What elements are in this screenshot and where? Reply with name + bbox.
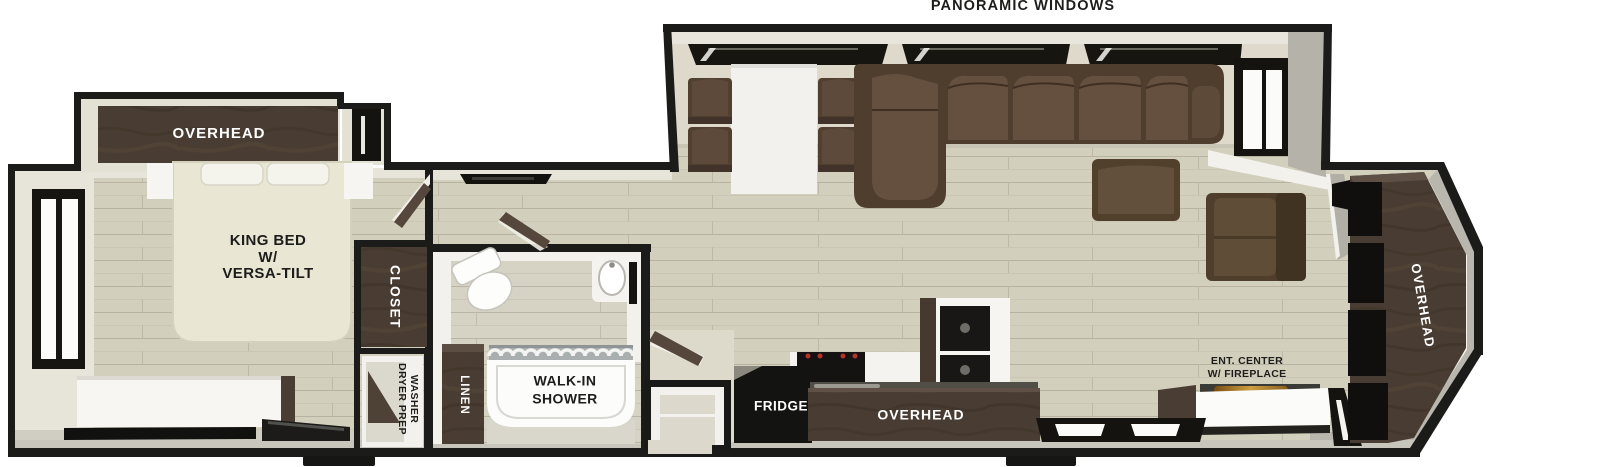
svg-text:WALK-IN: WALK-IN [534, 373, 597, 389]
svg-text:WASHER: WASHER [408, 375, 420, 424]
svg-text:SHOWER: SHOWER [532, 391, 597, 407]
svg-text:W/ FIREPLACE: W/ FIREPLACE [1208, 368, 1287, 380]
svg-text:OVERHEAD: OVERHEAD [877, 407, 964, 423]
svg-text:FRIDGE: FRIDGE [754, 399, 808, 414]
svg-text:VERSA-TILT: VERSA-TILT [222, 265, 313, 282]
svg-text:OVERHEAD: OVERHEAD [172, 125, 265, 142]
svg-text:LINEN: LINEN [458, 375, 470, 415]
svg-text:KING BED: KING BED [230, 232, 307, 249]
svg-text:ENT. CENTER: ENT. CENTER [1211, 355, 1283, 367]
svg-text:CLOSET: CLOSET [387, 265, 402, 329]
svg-text:W/: W/ [258, 249, 278, 266]
svg-text:DRYER PREP: DRYER PREP [396, 363, 408, 435]
svg-text:PANORAMIC WINDOWS: PANORAMIC WINDOWS [931, 0, 1115, 14]
